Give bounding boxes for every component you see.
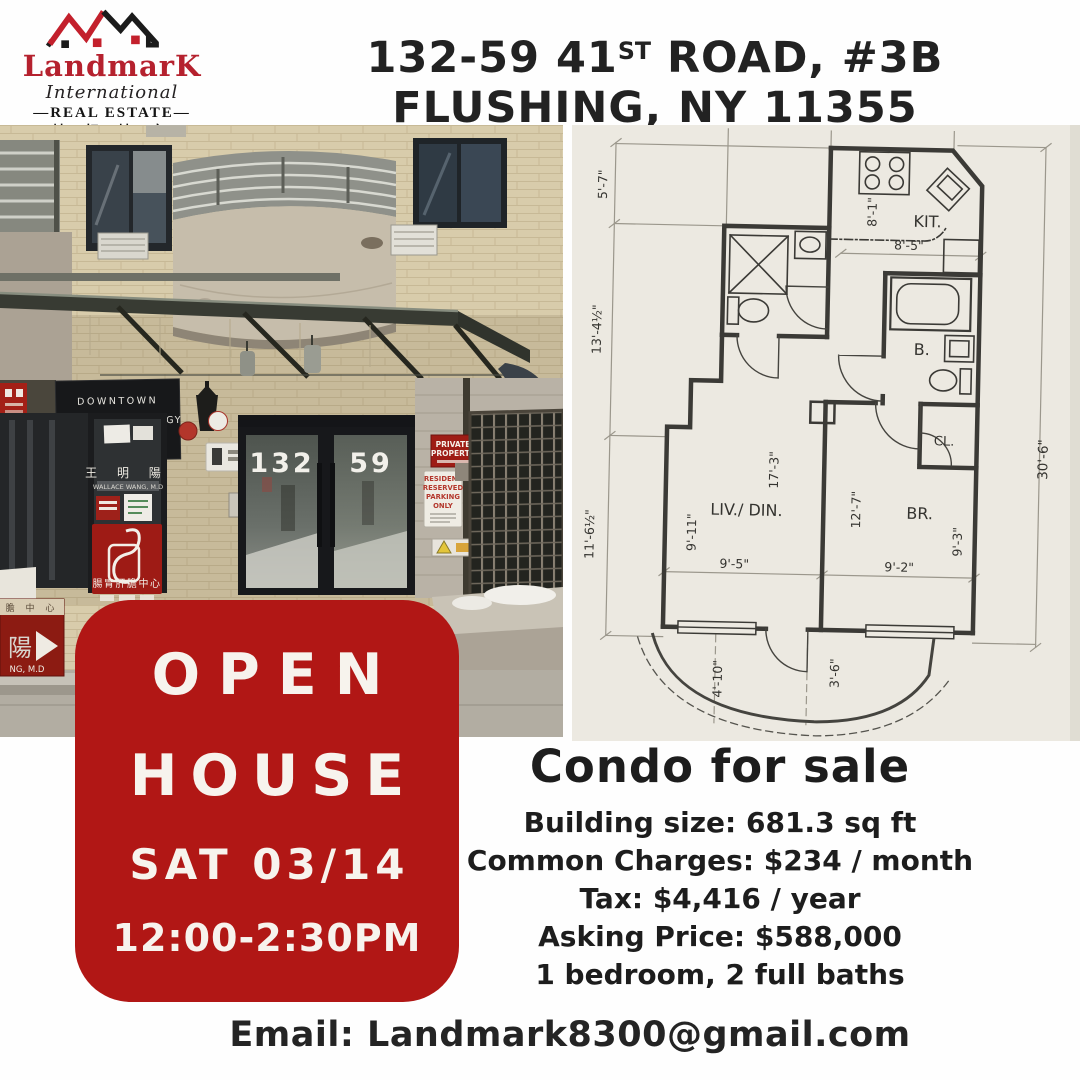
- warning-sticker: [432, 539, 474, 556]
- room-label-bath: B.: [914, 340, 930, 359]
- open-house-line-1: OPEN: [75, 642, 459, 708]
- dim-top-left: 5'-7": [595, 169, 611, 199]
- svg-text:ONLY: ONLY: [433, 502, 453, 510]
- door-number-left: 132: [249, 448, 314, 479]
- listing-detail-tax: Tax: $4,416 / year: [420, 880, 1020, 918]
- brand-logo: LandmarK International —REAL ESTATE— 地 标…: [14, 4, 210, 139]
- entrance-doors: 132 59: [238, 415, 415, 595]
- ac-grille-right: [391, 225, 437, 255]
- door-number-right: 59: [349, 448, 393, 479]
- dim-liv-len: 17'-3": [766, 451, 782, 489]
- gated-window: [470, 410, 563, 594]
- arrow-sign: 膽 中 心 陽 NG, M.D: [0, 599, 64, 676]
- open-house-badge: OPEN HOUSE SAT 03/14 12:00-2:30PM: [75, 600, 459, 1002]
- doctor-name-en: WALLACE WANG, M.D: [93, 483, 163, 491]
- dim-balcony-a: 4'-10": [709, 660, 725, 698]
- listing-detail-rooms: 1 bedroom, 2 full baths: [420, 956, 1020, 994]
- listing-info: Condo for sale Building size: 681.3 sq f…: [420, 740, 1020, 994]
- dim-br-depth: 9'-3": [949, 527, 965, 557]
- logo-brand: LandmarK: [14, 52, 210, 81]
- doctor-name-cn: 王 明 陽: [85, 466, 169, 480]
- round-sign: [209, 412, 228, 431]
- window-right: [413, 138, 507, 228]
- dim-liv-depth: 9'-11": [684, 513, 700, 551]
- ac-unit-left: [98, 233, 148, 259]
- listing-detail-size: Building size: 681.3 sq ft: [420, 804, 1020, 842]
- fire-bell: [179, 422, 197, 440]
- dim-kit-depth: 8'-1": [864, 197, 880, 227]
- dim-br-len: 12'-7": [848, 491, 864, 529]
- listing-title: Condo for sale: [420, 740, 1020, 793]
- dim-balcony-b: 3'-6": [827, 658, 843, 688]
- svg-text:膽 中 心: 膽 中 心: [6, 602, 59, 614]
- logo-real-estate: —REAL ESTATE—: [14, 106, 210, 121]
- left-storefront: [0, 413, 88, 607]
- svg-text:PRIVATE: PRIVATE: [436, 440, 471, 449]
- svg-text:陽: 陽: [8, 634, 32, 662]
- meter-box: [455, 463, 469, 481]
- svg-text:PARKING: PARKING: [426, 493, 460, 501]
- contact-email: Email: Landmark8300@gmail.com: [90, 1015, 1050, 1055]
- dim-kit-width: 8'-5": [894, 237, 924, 253]
- room-label-living: LIV./ DIN.: [710, 500, 783, 521]
- floor-plan-drawing: KIT. B. CL. LIV./ DIN. BR. 5'-7" 13'-4½"…: [572, 125, 1080, 741]
- room-label-bedroom: BR.: [906, 504, 933, 524]
- dim-left-bottom: 11'-6½": [581, 509, 597, 559]
- open-house-time: 12:00-2:30PM: [75, 916, 459, 960]
- room-label-closet: CL.: [934, 434, 955, 449]
- open-house-line-2: HOUSE: [75, 743, 459, 809]
- svg-text:RESERVED: RESERVED: [423, 484, 464, 492]
- logo-international: International: [14, 84, 210, 102]
- floor-plan: KIT. B. CL. LIV./ DIN. BR. 5'-7" 13'-4½"…: [572, 125, 1080, 741]
- svg-text:NG, M.D: NG, M.D: [10, 665, 45, 675]
- left-balcony-rail: [0, 140, 60, 232]
- center-name-cn: 腸胃肝膽中心: [93, 577, 162, 590]
- dim-liv-width: 9'-5": [719, 556, 749, 572]
- flyer-canvas: LandmarK International —REAL ESTATE— 地 标…: [0, 0, 1080, 1080]
- pipe-rail: [0, 273, 340, 281]
- dim-right-side: 30'-6": [1035, 439, 1052, 480]
- open-house-date: SAT 03/14: [75, 840, 459, 889]
- svg-text:DOWNTOWN: DOWNTOWN: [77, 395, 158, 407]
- address-line-1: 132-59 41ST ROAD, #3B: [330, 26, 980, 83]
- roofline-icon: [37, 4, 187, 48]
- listing-detail-charges: Common Charges: $234 / month: [420, 842, 1020, 880]
- vent: [146, 125, 186, 137]
- dim-left-mid: 13'-4½": [589, 304, 605, 354]
- clinic-door: 王 明 陽 WALLACE WANG, M.D 腸胃肝膽中心: [85, 413, 169, 601]
- dim-br-width: 9'-2": [884, 559, 914, 575]
- property-address: 132-59 41ST ROAD, #3B FLUSHING, NY 11355: [330, 26, 980, 133]
- listing-detail-price: Asking Price: $588,000: [420, 918, 1020, 956]
- ordinal-suffix: ST: [618, 37, 651, 65]
- room-label-kitchen: KIT.: [913, 212, 942, 232]
